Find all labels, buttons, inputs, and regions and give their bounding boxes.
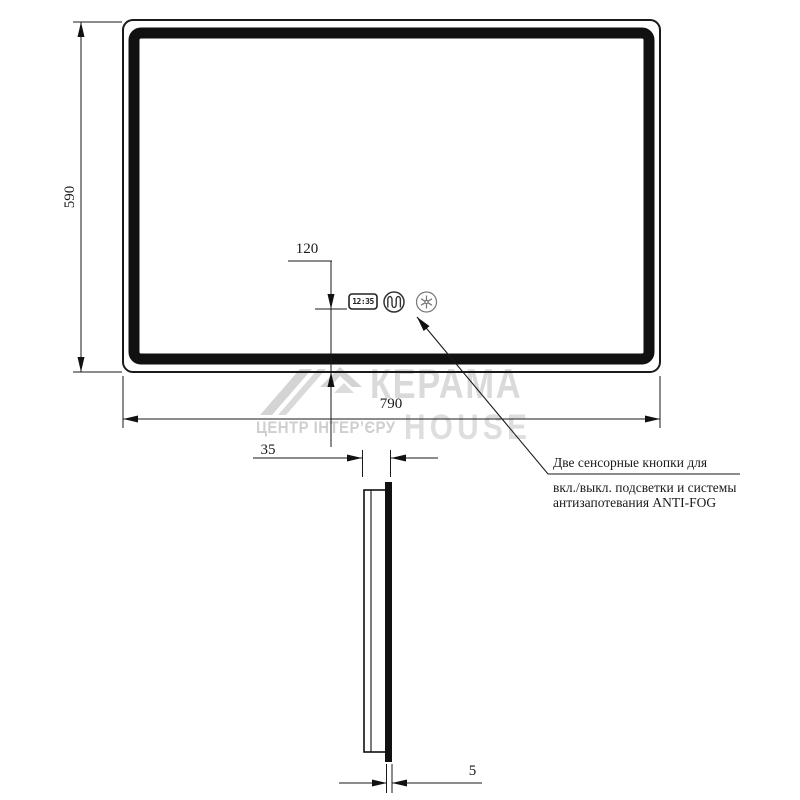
arrow-down-icon xyxy=(78,357,85,372)
dim-height-label: 590 xyxy=(58,177,82,217)
arrow-up-icon xyxy=(328,372,335,387)
arrow-up-icon xyxy=(78,22,85,37)
technical-drawing-canvas: КЕРАМА HOUSE ЦЕНТР ІНТЕР’ЄРУ xyxy=(0,0,800,800)
side-view-frame-box xyxy=(364,490,386,752)
mirror-front-view xyxy=(123,20,660,372)
arrow-right-icon xyxy=(347,455,362,462)
arrow-left-icon xyxy=(123,416,138,423)
dim-offset-label: 120 xyxy=(282,242,332,257)
side-view-mirror-glass xyxy=(385,482,392,762)
clock-time-label: 12:35 xyxy=(349,294,377,309)
dim-depth-label: 35 xyxy=(248,443,288,458)
annotation-line3: антизапотевания ANTI-FOG xyxy=(553,496,716,510)
annotation-line1: Две сенсорные кнопки для xyxy=(553,456,707,470)
annotation-line2: вкл./выкл. подсветки и системы xyxy=(553,481,736,495)
arrow-right-icon xyxy=(372,780,387,787)
arrow-down-icon xyxy=(328,294,335,309)
mirror-outer-edge xyxy=(123,20,660,372)
arrow-left-icon xyxy=(391,455,406,462)
mirror-side-view xyxy=(364,482,392,762)
dim-width-label: 790 xyxy=(366,397,416,412)
dim-glass-label: 5 xyxy=(460,764,485,779)
annotation-leader xyxy=(414,315,740,474)
arrow-right-icon xyxy=(645,416,660,423)
arrow-left-icon xyxy=(392,780,407,787)
